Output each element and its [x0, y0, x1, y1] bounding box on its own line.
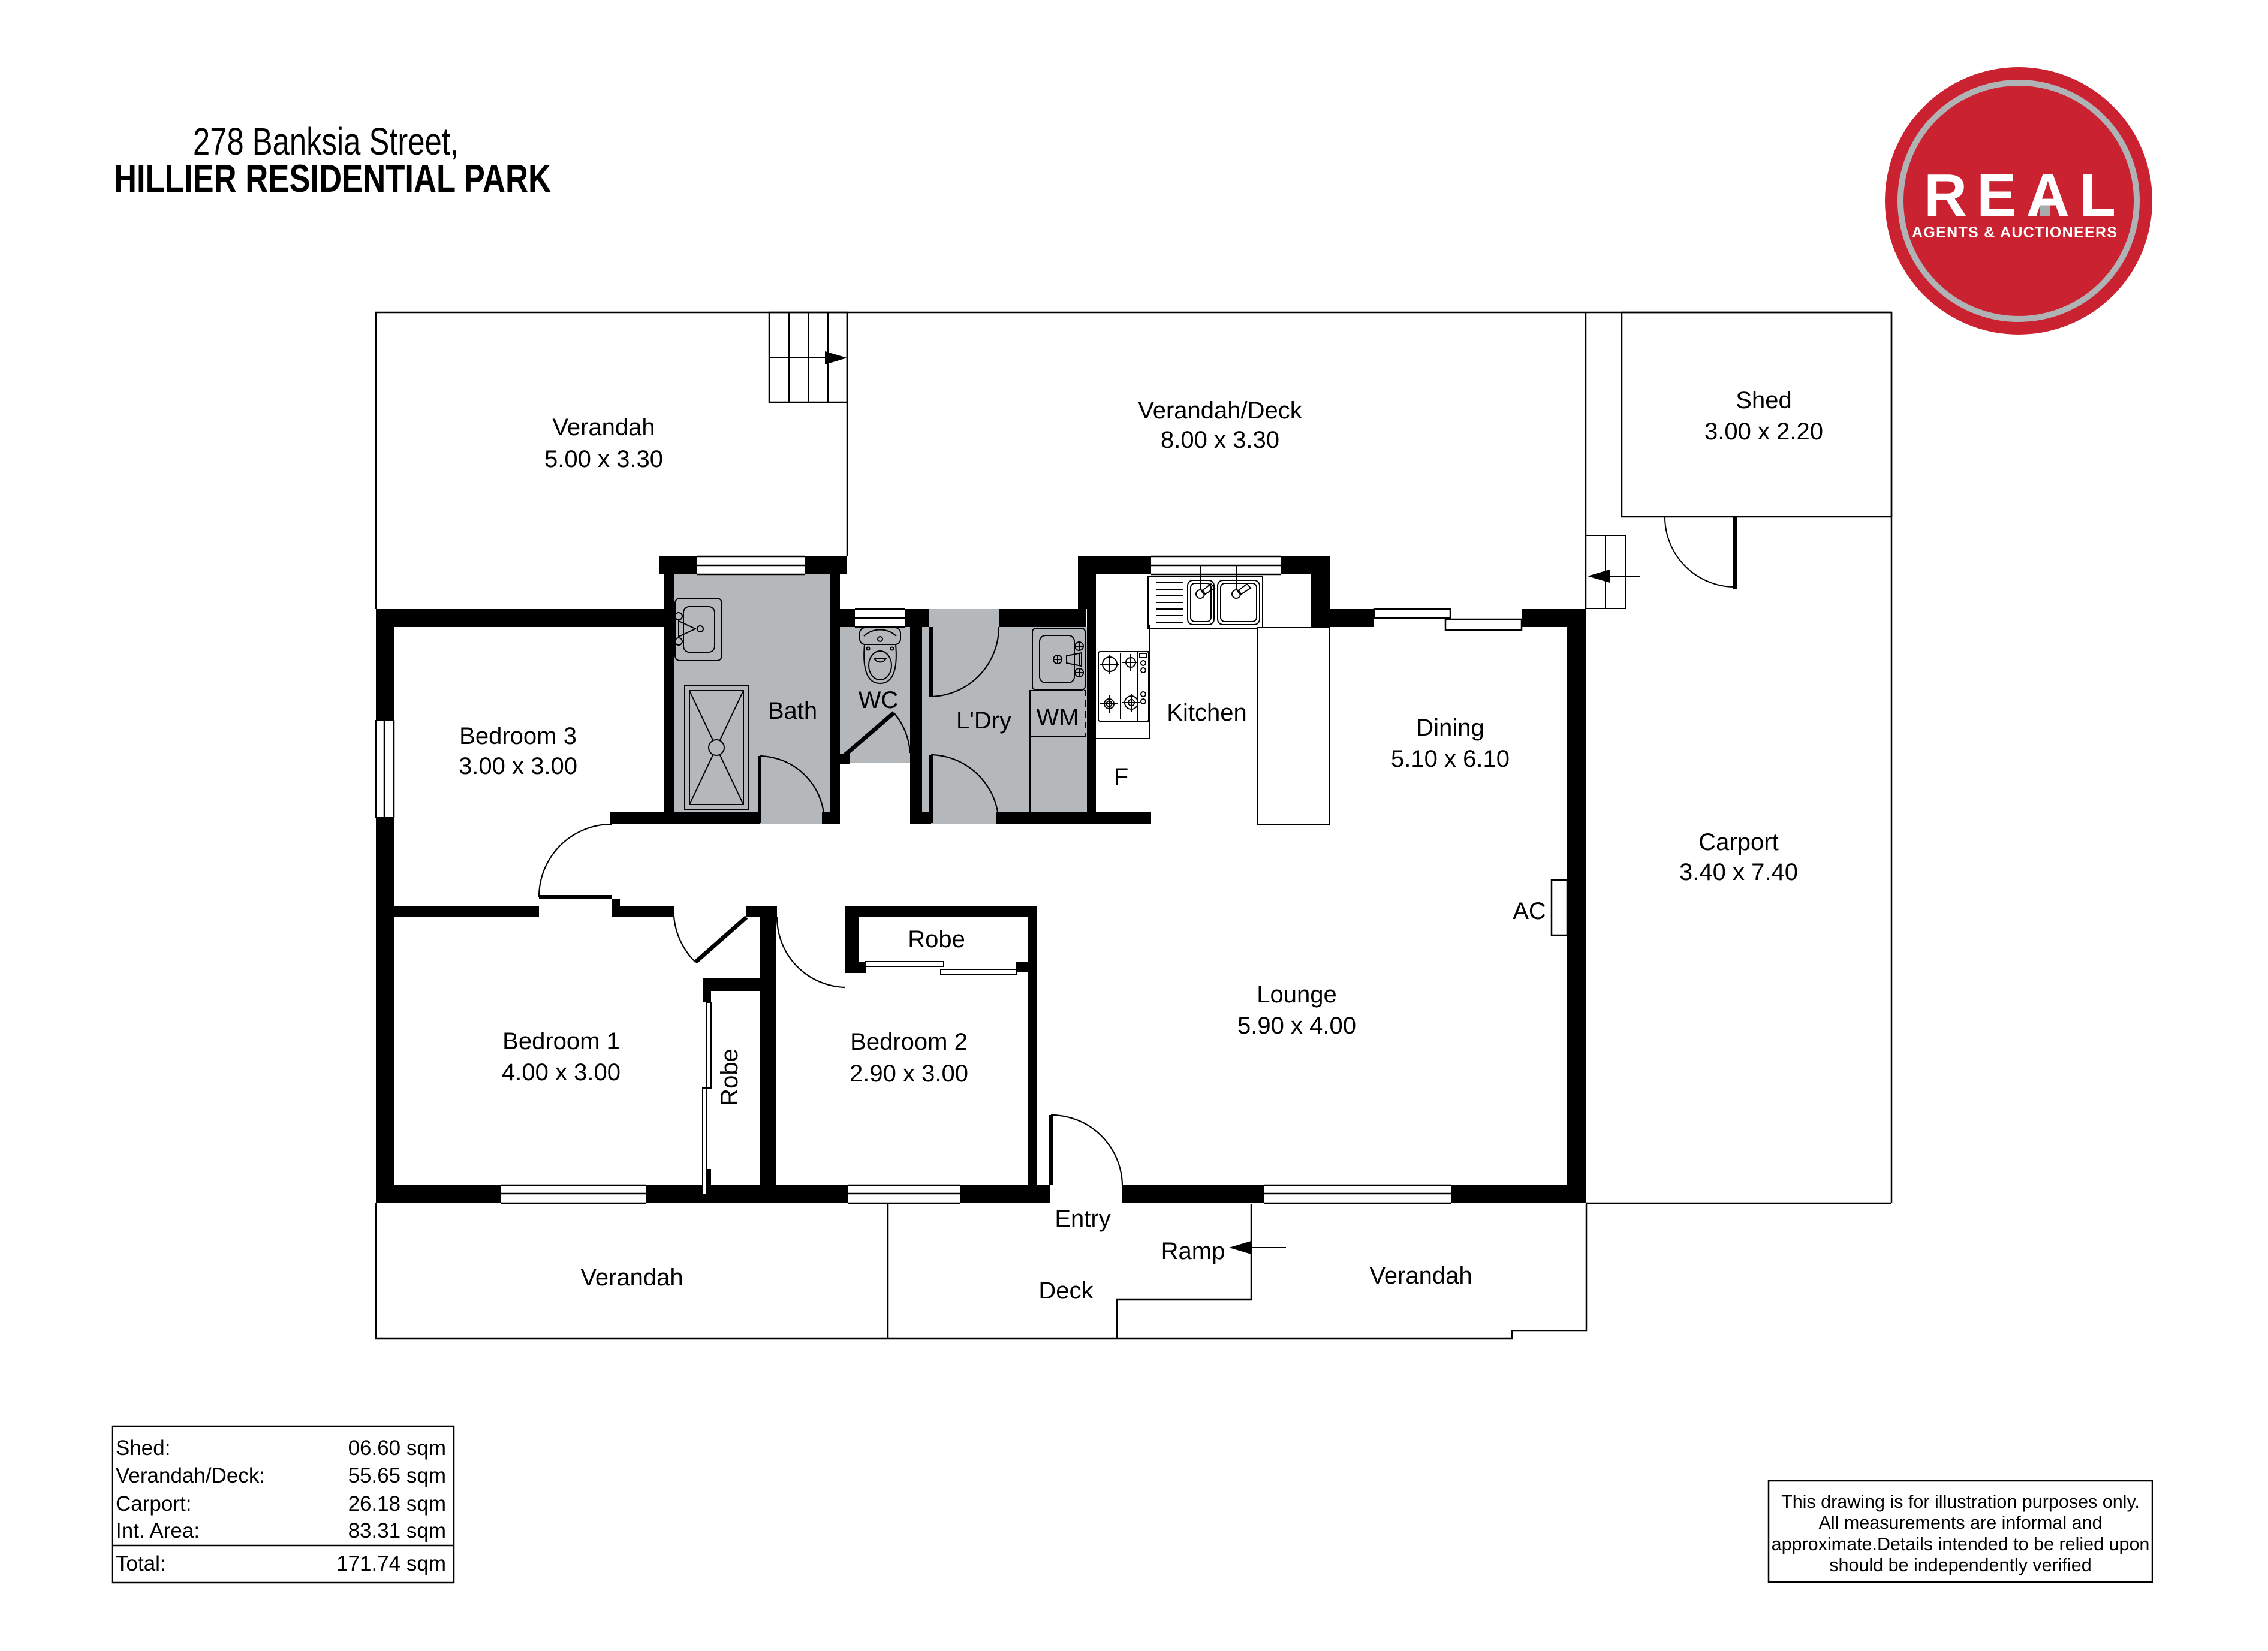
svg-text:L'Dry: L'Dry [956, 707, 1011, 734]
svg-text:3.00 x 3.00: 3.00 x 3.00 [459, 753, 577, 779]
svg-text:Deck: Deck [1038, 1278, 1094, 1304]
svg-text:AGENTS & AUCTIONEERS: AGENTS & AUCTIONEERS [1912, 224, 2117, 241]
svg-text:Ramp: Ramp [1161, 1238, 1225, 1264]
svg-text:AC: AC [1513, 898, 1546, 924]
svg-text:Entry: Entry [1055, 1206, 1110, 1232]
svg-text:Bedroom 2: Bedroom 2 [850, 1029, 968, 1055]
svg-text:Verandah: Verandah [580, 1264, 683, 1291]
svg-text:approximate.Details intended t: approximate.Details intended to be relie… [1772, 1534, 2150, 1554]
svg-text:Bedroom 1: Bedroom 1 [502, 1028, 620, 1055]
svg-text:Verandah/Deck:: Verandah/Deck: [116, 1464, 265, 1487]
svg-text:Verandah: Verandah [1369, 1263, 1472, 1289]
svg-text:Verandah/Deck: Verandah/Deck [1138, 397, 1303, 424]
svg-text:Int. Area:: Int. Area: [116, 1519, 200, 1542]
svg-text:should be independently verifi: should be independently verified [1829, 1555, 2091, 1575]
svg-text:3.00 x 2.20: 3.00 x 2.20 [1704, 418, 1823, 445]
svg-text:Carport: Carport [1698, 829, 1778, 855]
svg-text:All measurements are informal: All measurements are informal and [1819, 1513, 2103, 1533]
svg-text:Robe: Robe [716, 1049, 743, 1106]
svg-text:Shed:: Shed: [116, 1436, 170, 1460]
svg-text:8.00 x 3.30: 8.00 x 3.30 [1161, 427, 1279, 453]
svg-text:83.31 sqm: 83.31 sqm [348, 1519, 446, 1542]
svg-text:26.18 sqm: 26.18 sqm [348, 1492, 446, 1516]
svg-text:Lounge: Lounge [1257, 981, 1336, 1008]
svg-text:Robe: Robe [908, 926, 965, 953]
svg-text:4.00 x 3.00: 4.00 x 3.00 [502, 1059, 621, 1086]
svg-text:Kitchen: Kitchen [1167, 700, 1246, 726]
svg-text:171.74 sqm: 171.74 sqm [336, 1552, 446, 1575]
svg-text:HILLIER RESIDENTIAL PARK: HILLIER RESIDENTIAL PARK [114, 156, 551, 200]
svg-text:WC: WC [859, 687, 899, 713]
svg-text:Total:: Total: [116, 1552, 166, 1575]
svg-text:Bedroom 3: Bedroom 3 [459, 723, 577, 749]
svg-text:55.65 sqm: 55.65 sqm [348, 1464, 446, 1487]
svg-text:WM: WM [1036, 704, 1079, 731]
svg-text:5.00 x 3.30: 5.00 x 3.30 [544, 446, 663, 472]
svg-text:2.90 x 3.00: 2.90 x 3.00 [850, 1061, 968, 1087]
svg-text:Dining: Dining [1416, 715, 1484, 741]
svg-text:5.10 x 6.10: 5.10 x 6.10 [1391, 746, 1510, 772]
svg-text:Bath: Bath [768, 698, 817, 724]
svg-text:5.90 x 4.00: 5.90 x 4.00 [1237, 1013, 1356, 1039]
svg-text:Shed: Shed [1736, 387, 1791, 414]
svg-text:Carport:: Carport: [116, 1492, 191, 1516]
svg-text:Verandah: Verandah [552, 414, 655, 441]
svg-text:06.60 sqm: 06.60 sqm [348, 1436, 446, 1460]
svg-text:This drawing is for illustrati: This drawing is for illustration purpose… [1781, 1492, 2140, 1512]
svg-text:3.40 x 7.40: 3.40 x 7.40 [1679, 859, 1798, 885]
svg-text:F: F [1114, 764, 1128, 790]
